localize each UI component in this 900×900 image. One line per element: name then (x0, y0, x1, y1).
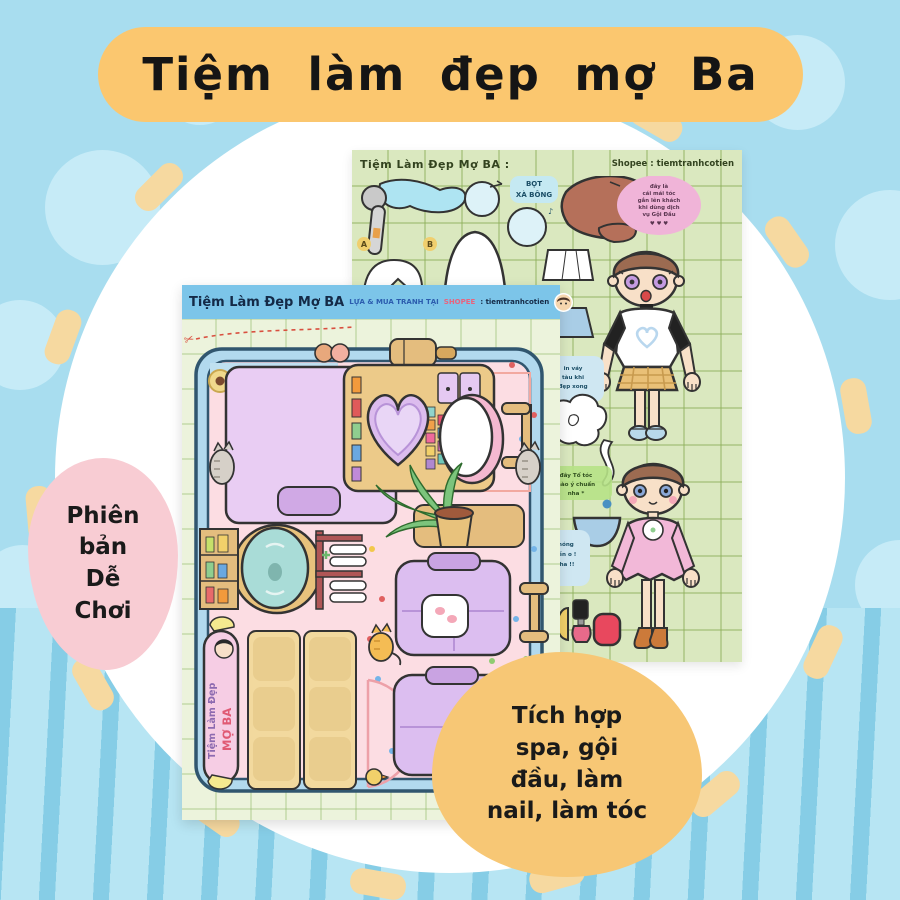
svg-text:nào ý chuẩn: nào ý chuẩn (557, 481, 595, 488)
buy-text: LỰA & MUA TRANH TẠI (349, 298, 439, 306)
cut-line (196, 327, 354, 339)
nail-polish-bottle (572, 600, 590, 642)
back-sheet-header: Tiệm Làm Đẹp Mợ BA : Shopee : tiemtranhc… (352, 150, 742, 176)
svg-text:gắn lên khách: gắn lên khách (638, 197, 681, 204)
wash-basin-illustration (233, 525, 321, 613)
svg-text:BỌT: BỌT (526, 180, 542, 188)
badge-line: spa, gội (516, 733, 619, 765)
shopee-label: SHOPEE (444, 298, 476, 306)
badge-line: Chơi (75, 596, 132, 628)
front-sheet-title: Tiệm Làm Đẹp Mợ BA (189, 295, 344, 310)
title-banner: Tiệm làm đẹp mợ Ba (98, 27, 803, 122)
side-banner-text-bottom: MỢ BA (220, 708, 234, 751)
svg-text:đẹp xong: đẹp xong (558, 384, 587, 390)
white-skirt (543, 250, 593, 280)
svg-text:B: B (427, 240, 433, 249)
scissors-icon: ✂ (182, 331, 196, 348)
shower-head-illustration (362, 180, 465, 255)
side-banner: Tiệm Làm Đẹp MỢ BA (204, 617, 238, 789)
vanity-illustration (344, 365, 503, 491)
front-sheet-header: Tiệm Làm Đẹp Mợ BA LỰA & MUA TRANH TẠI S… (182, 285, 560, 319)
station-chair-seat (440, 398, 492, 476)
promo-image: Tiệm Làm Đẹp Mợ BA : Shopee : tiemtranhc… (0, 0, 900, 900)
product-shelf (200, 529, 238, 609)
back-sheet-title: Tiệm Làm Đẹp Mợ BA : (360, 158, 510, 171)
marker-b: B (423, 237, 437, 251)
svg-text:A: A (361, 240, 368, 249)
bg-dot (835, 190, 900, 300)
svg-text:XÀ BÔNG: XÀ BÔNG (516, 190, 552, 199)
foam-blob (508, 208, 546, 246)
blue-button (603, 500, 612, 509)
badge-line: nail, làm tóc (487, 796, 647, 828)
foam-blob (465, 182, 499, 216)
title-text: Tiệm làm đẹp mợ Ba (142, 48, 758, 101)
svg-text:nha *: nha * (568, 491, 585, 497)
badge-line: Dễ (86, 564, 121, 596)
svg-text:tàu khi: tàu khi (562, 374, 584, 381)
shop-name: : tiemtranhcotien (480, 298, 549, 306)
svg-text:khi dùng dịch: khi dùng dịch (638, 204, 679, 211)
badge-line: bản (79, 532, 127, 564)
svg-text:vụ Gội Đầu: vụ Gội Đầu (642, 210, 675, 218)
back-sheet-shop-label: Shopee : tiemtranhcotien (612, 159, 734, 169)
badge-line: đầu, làm (511, 765, 623, 797)
svg-text:♪: ♪ (548, 207, 553, 216)
badge-line: Tích hợp (512, 701, 622, 733)
red-jar (594, 614, 620, 645)
badge-line: Phiên (66, 501, 139, 533)
marker-a: A (357, 237, 371, 251)
svg-text:cái mái tóc: cái mái tóc (642, 190, 675, 197)
paper-doll-1 (594, 252, 700, 440)
salon-chair-1 (396, 553, 510, 655)
bg-dot (0, 300, 65, 390)
svg-text:đây Tổ tóc: đây Tổ tóc (560, 472, 593, 479)
side-banner-text-top: Tiệm Làm Đẹp (207, 683, 218, 759)
svg-text:đây là: đây là (650, 183, 669, 190)
svg-text:♥ ♥ ♥: ♥ ♥ ♥ (650, 221, 668, 227)
shop-avatar (554, 293, 573, 312)
svg-text:in váy: in váy (564, 365, 583, 372)
